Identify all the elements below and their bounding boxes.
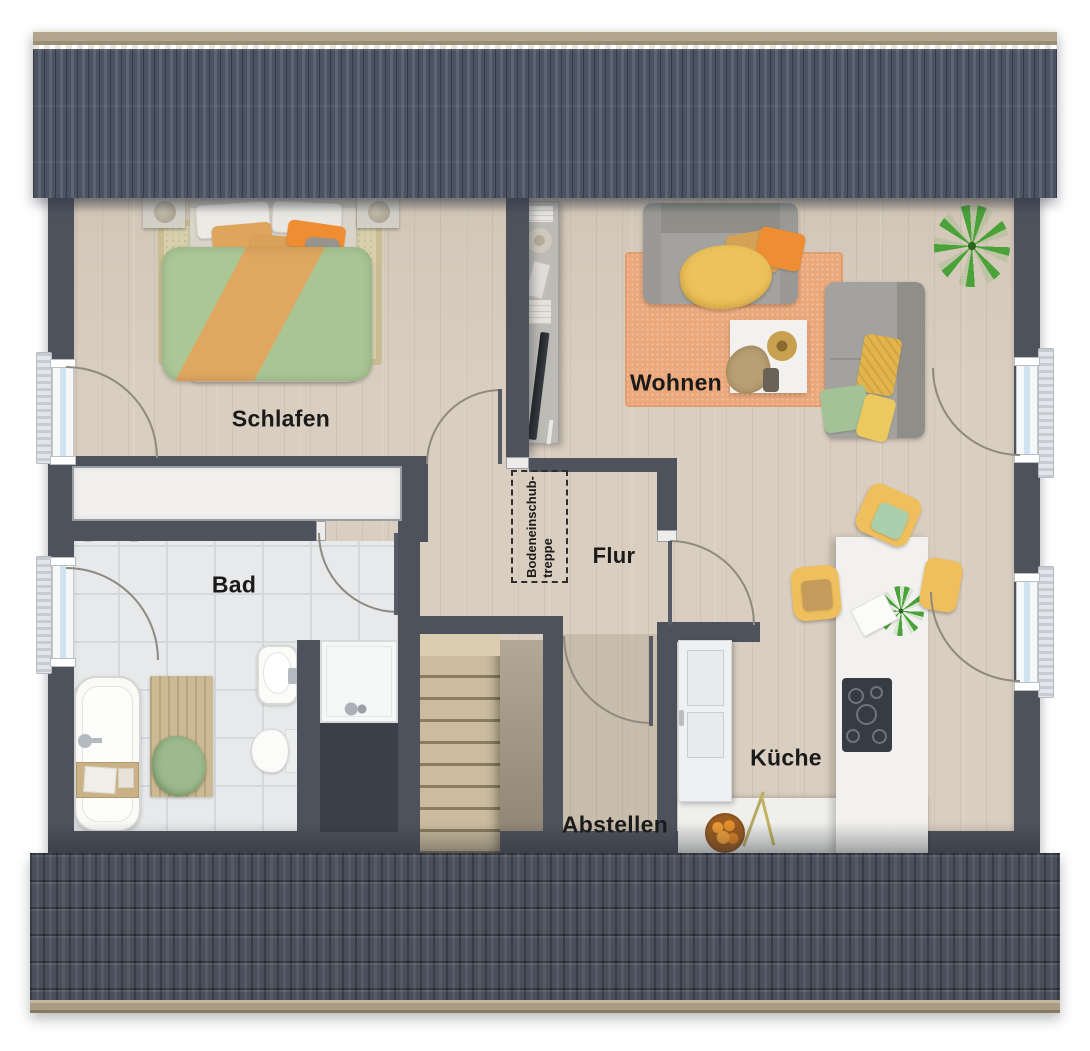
- roof-bottom: [30, 853, 1060, 1013]
- attic-hatch-label-line2: treppe: [540, 538, 555, 578]
- cooktop: [842, 678, 892, 752]
- radiator-left-bad: [36, 556, 52, 674]
- decor-bowl-shelf: [527, 228, 552, 253]
- shower-fixture: [344, 700, 368, 718]
- bathtub-spout: [90, 738, 102, 743]
- bed-duvet: [162, 247, 372, 381]
- cabinet-panel-lower: [687, 712, 724, 758]
- staircase: [420, 634, 500, 853]
- sofa-top-arm-left: [643, 203, 661, 304]
- staircase-landing: [420, 634, 500, 656]
- room-label-kueche: Küche: [750, 747, 822, 770]
- pampas-vase: [763, 368, 779, 392]
- room-label-schlafen: Schlafen: [232, 408, 330, 431]
- bath-caddy-item: [118, 768, 134, 788]
- burner-3: [856, 704, 877, 725]
- roof-bottom-tiles: [30, 853, 1060, 1000]
- bath-caddy-book: [83, 766, 117, 794]
- burner-1: [848, 688, 864, 704]
- burner-2: [870, 686, 883, 699]
- attic-hatch-label-line1: Bodeneinschub-: [523, 476, 538, 578]
- door-leaf-bad: [394, 533, 398, 615]
- wall-schlafen-wohnen: [506, 195, 529, 458]
- wall-stair-right: [543, 634, 563, 853]
- toilet-bowl: [251, 729, 289, 773]
- bar-chair-left-cushion: [801, 579, 834, 612]
- green-towel: [152, 736, 206, 796]
- radiator-left-schlafen: [36, 352, 52, 464]
- burner-5: [872, 729, 887, 744]
- flower-branch-blooms: [742, 788, 786, 818]
- palm-plant: [934, 205, 1010, 287]
- wall-bad-right: [398, 521, 420, 853]
- built-in-closet: [72, 466, 402, 521]
- cabinet-panel-upper: [687, 650, 724, 706]
- door-leaf-kueche: [668, 541, 672, 625]
- roof-ridge-cap: [33, 30, 1057, 45]
- roof-top-panels: [33, 49, 1057, 198]
- wall-exterior-left: [48, 195, 74, 855]
- void-under-shower: [320, 723, 398, 832]
- roof-shadow-bottom: [48, 822, 1040, 853]
- wall-exterior-right: [1014, 195, 1040, 855]
- wall-flur-bottom: [398, 616, 563, 634]
- decor-bowl-table: [767, 331, 797, 361]
- floor-plan: Bodeneinschub- treppe Schlafen Wohnen Ba…: [0, 0, 1090, 1051]
- wall-bad-top: [72, 521, 324, 541]
- door-leaf-abstellen: [649, 636, 653, 726]
- radiator-right-wohnen: [1038, 348, 1054, 478]
- window-right-kueche-glass: [1024, 582, 1030, 682]
- room-label-flur: Flur: [593, 545, 636, 567]
- wall-cap-schlafen-wohnen: [506, 457, 529, 469]
- room-label-wohnen: Wohnen: [630, 372, 722, 395]
- roof-gutter: [30, 1000, 1060, 1013]
- room-label-bad: Bad: [212, 574, 256, 597]
- burner-4: [846, 729, 860, 743]
- wall-kueche-top: [657, 622, 760, 642]
- bathtub-basin: [82, 686, 133, 822]
- roof-top: [33, 30, 1057, 198]
- sofa-right-backrest: [897, 282, 925, 438]
- door-leaf-schlafen: [498, 389, 502, 464]
- wall-bad-internal: [297, 640, 320, 832]
- attic-hatch-outline: Bodeneinschub- treppe: [511, 470, 568, 583]
- window-right-wohnen-glass: [1024, 366, 1030, 454]
- cabinet-handle: [679, 710, 684, 726]
- radiator-right-kueche: [1038, 566, 1054, 698]
- attic-hatch-label: Bodeneinschub- treppe: [523, 476, 556, 578]
